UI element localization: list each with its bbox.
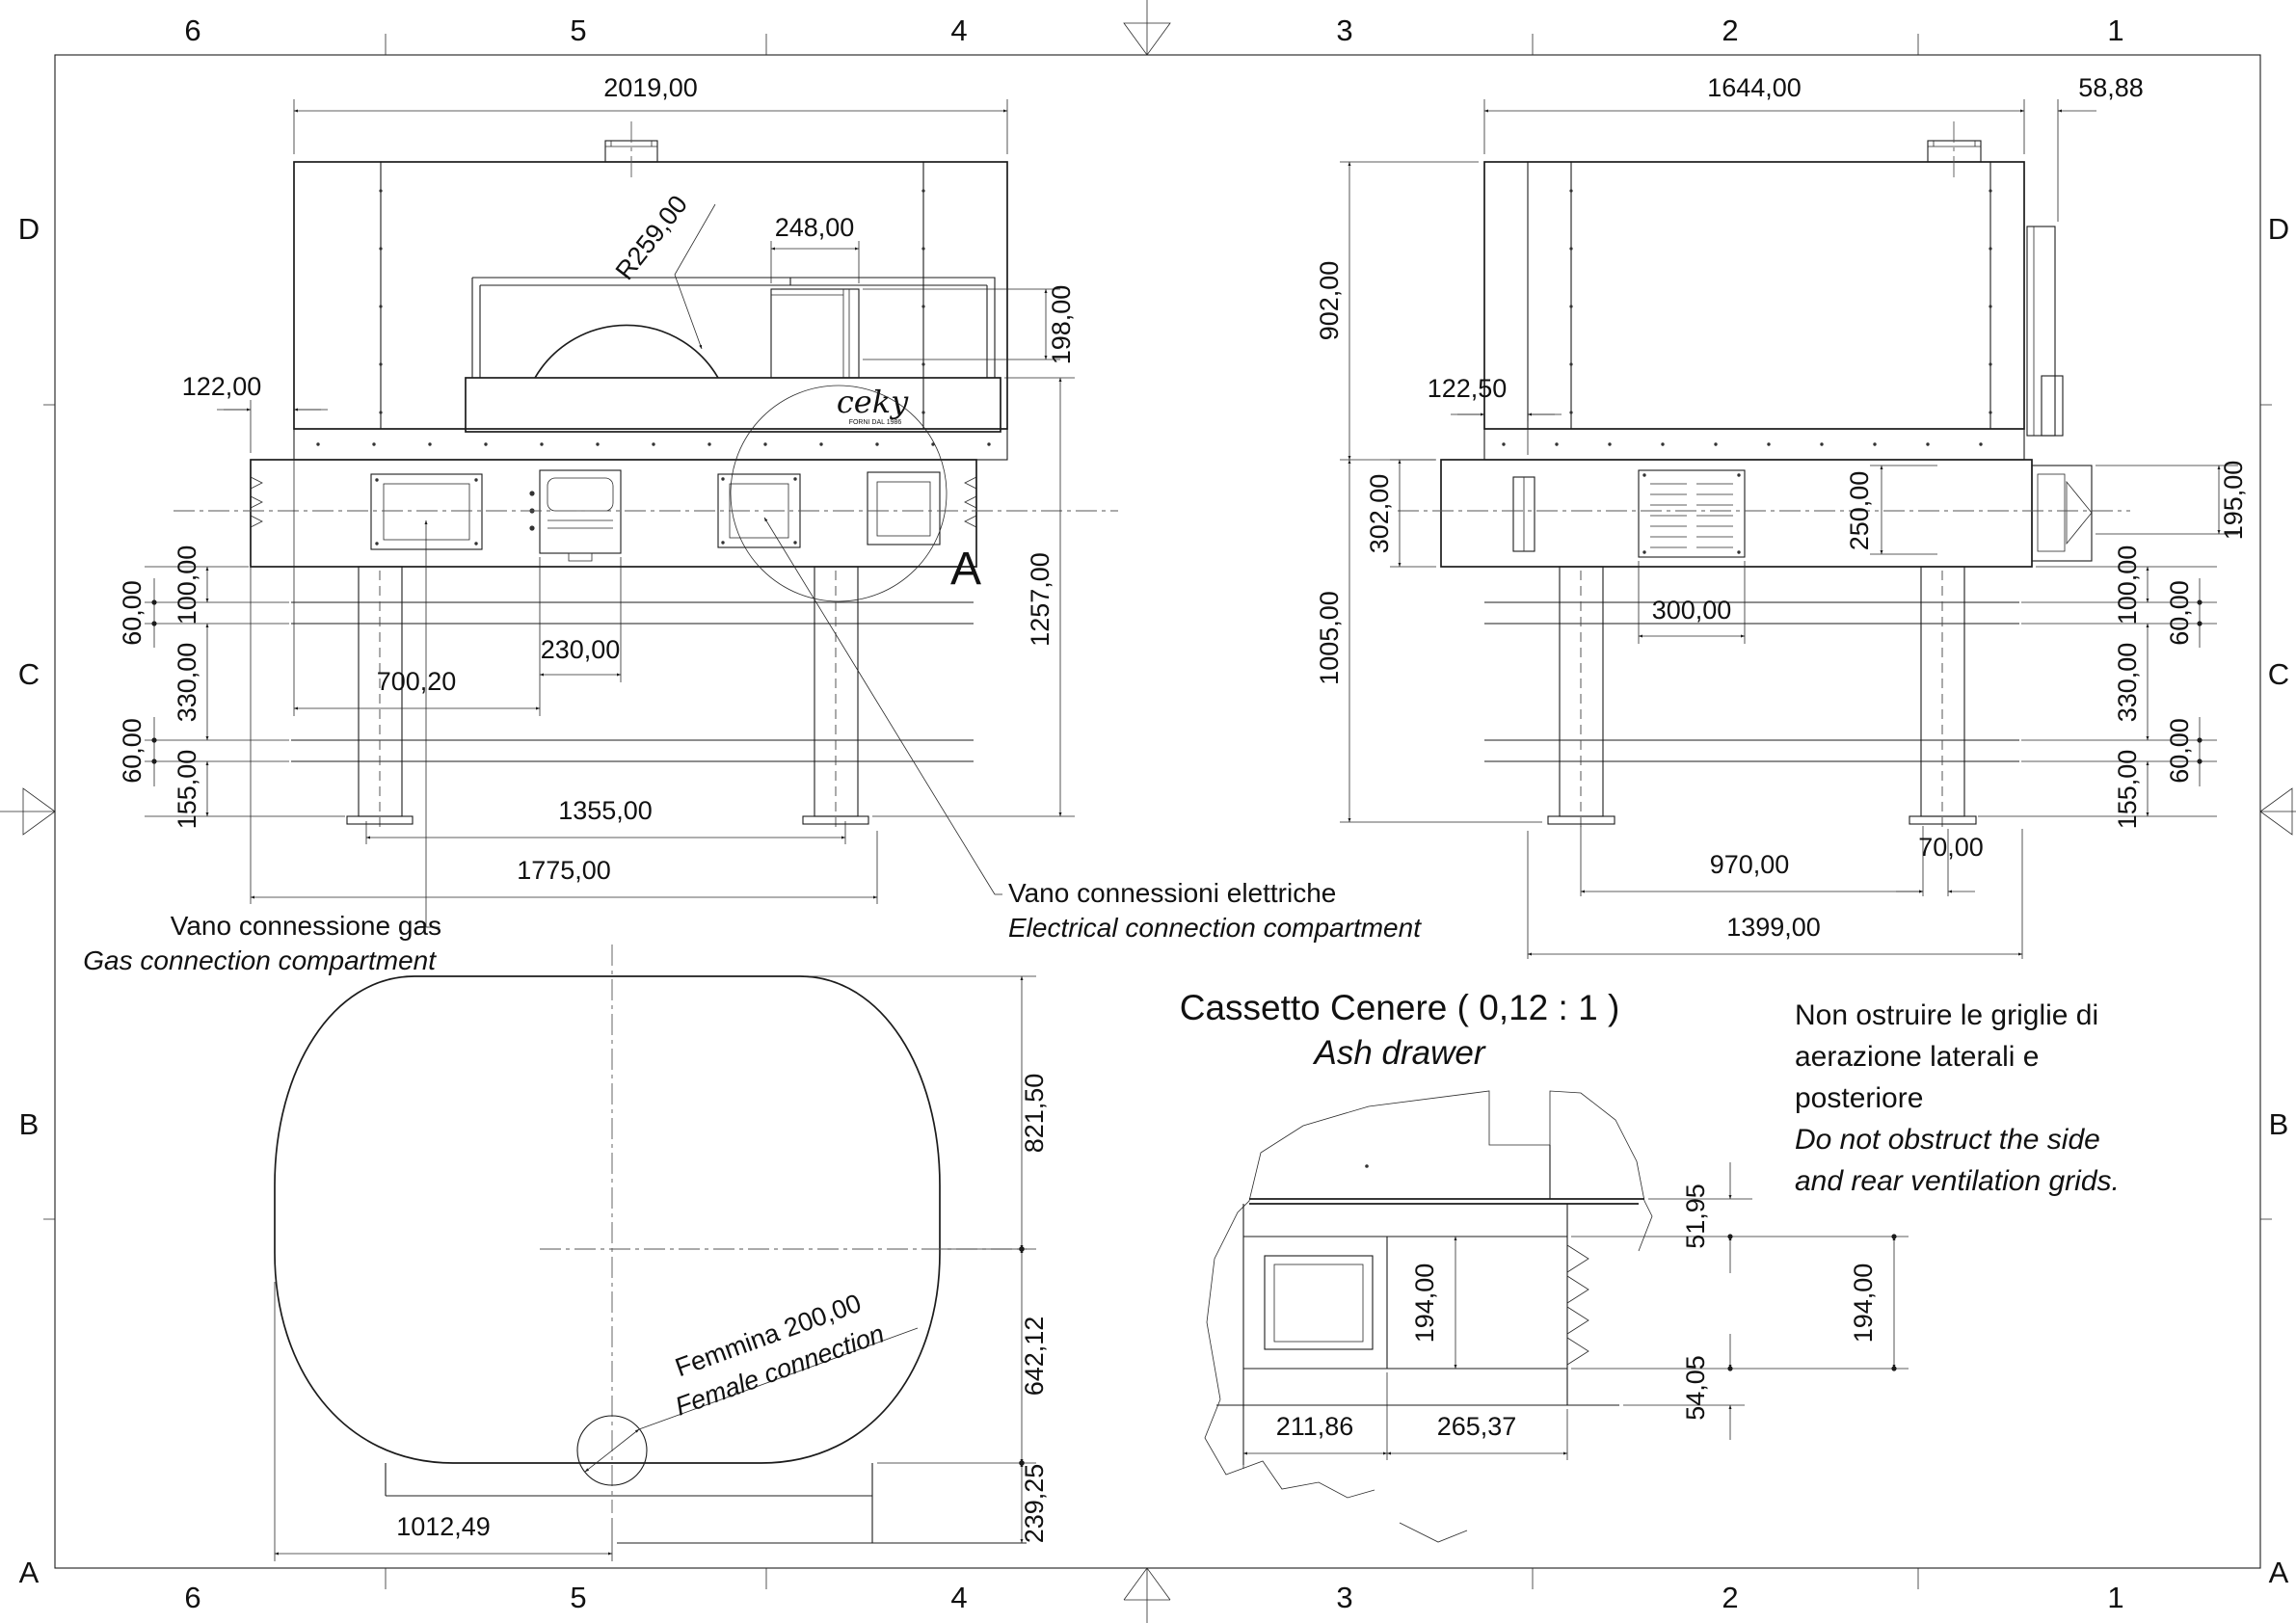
front-dimensions: 2019,00 R259,00 248,00 198,00 1257,00 12… (118, 73, 1076, 904)
dim-stack-330: 330,00 (173, 643, 201, 723)
detail-dimensions: 51,95 194,00 194,00 54,05 211,86 265,37 (1243, 1162, 1909, 1469)
side-legs (1484, 567, 2019, 829)
border-frame: 6 5 4 3 2 1 6 5 4 3 2 1 D C B A D C B A (0, 0, 2296, 1623)
dim-legs-span: 1355,00 (558, 796, 653, 825)
border-row-left: D (18, 212, 40, 246)
border-row-left: C (18, 657, 40, 691)
border-row-right: D (2268, 212, 2289, 246)
chimney-side (1928, 121, 1981, 179)
brand-logo-subtext: FORNI DAL 1986 (849, 419, 902, 426)
note-line-en: and rear ventilation grids. (1795, 1165, 2120, 1197)
side-opening (771, 289, 859, 378)
label-electrical-it: Vano connessioni elettriche (1008, 878, 1336, 908)
dim-plan-front: 821,50 (1020, 1074, 1049, 1154)
brand-logo: ceky (837, 384, 909, 420)
dim-stack-155: 155,00 (2113, 750, 2142, 830)
dim-body-height: 902,00 (1315, 261, 1344, 341)
dim-side-legs-span: 970,00 (1710, 850, 1790, 879)
border-row-right: C (2268, 657, 2289, 691)
dim-stack-330: 330,00 (2113, 643, 2142, 723)
dim-detail-h2: 194,00 (1849, 1264, 1878, 1344)
dim-stack-100: 100,00 (2113, 545, 2142, 625)
dim-detail-w1: 211,86 (1276, 1412, 1354, 1441)
dim-depth: 1644,00 (1707, 73, 1802, 102)
dim-plan-rear: 642,12 (1020, 1317, 1049, 1397)
dim-overhang: 58,88 (2078, 73, 2144, 102)
detail-subtitle: Ash drawer (1312, 1034, 1485, 1072)
side-compartment-band (1441, 460, 2092, 567)
oven-facade: ceky FORNI DAL 1986 (466, 278, 1001, 432)
dim-front-offset: 122,00 (182, 372, 262, 401)
border-col-bottom: 3 (1336, 1581, 1352, 1614)
front-labels: Vano connessione gas Gas connection comp… (83, 518, 1422, 975)
door-edge-overhang (2027, 226, 2063, 436)
dim-arch-radius: R259,00 (610, 190, 693, 285)
ventilation-grille (1639, 470, 1745, 557)
note-line-en: Do not obstruct the side (1795, 1124, 2100, 1156)
note-line-it: Non ostruire le griglie di (1795, 999, 2098, 1031)
dim-opening-width: 248,00 (775, 213, 855, 242)
dim-stack-60b: 60,00 (118, 718, 147, 784)
dome-outline (275, 976, 940, 1463)
border-col-bottom: 5 (570, 1581, 586, 1614)
rivet-dots (316, 442, 990, 445)
dim-stack-155: 155,00 (173, 750, 201, 830)
dim-stack-60b: 60,00 (2165, 718, 2194, 784)
dim-front-width: 2019,00 (603, 73, 698, 102)
ash-drawer-panel (529, 470, 621, 561)
dim-band-height: 302,00 (1365, 474, 1394, 554)
dim-stack-60a: 60,00 (118, 580, 147, 646)
label-gas-it: Vano connessione gas (171, 911, 441, 941)
dim-detail-bottomgap: 54,05 (1681, 1355, 1710, 1421)
side-view: 1644,00 58,88 902,00 1005,00 122,50 302,… (1315, 73, 2248, 959)
dim-stack-100: 100,00 (173, 545, 201, 625)
border-col-top: 3 (1336, 13, 1352, 47)
border-row-left: B (19, 1107, 40, 1141)
dim-front-height: 1257,00 (1026, 552, 1055, 647)
break-outline-squiggle (1400, 1523, 1467, 1542)
dim-foot: 70,00 (1918, 833, 1984, 862)
border-col-bottom: 4 (950, 1581, 967, 1614)
dim-base-width: 1775,00 (517, 856, 611, 885)
border-col-top: 1 (2107, 13, 2123, 47)
dim-detail-topgap: 51,95 (1681, 1184, 1710, 1249)
side-dimensions: 1644,00 58,88 902,00 1005,00 122,50 302,… (1315, 73, 2248, 959)
dim-plan-tail: 239,25 (1020, 1464, 1049, 1544)
border-col-top: 4 (950, 13, 967, 47)
counter-band (466, 378, 1001, 432)
note-line-it: aerazione laterali e (1795, 1041, 2040, 1073)
plan-view: Femmina 200,00 Female connection 821,50 … (275, 945, 1049, 1561)
front-view: ceky FORNI DAL 1986 A (83, 73, 1422, 975)
note-line-it: posteriore (1795, 1082, 1923, 1114)
dim-opening-height: 198,00 (1047, 285, 1076, 365)
gas-compartment-panel (371, 474, 482, 549)
cad-drawing: 6 5 4 3 2 1 6 5 4 3 2 1 D C B A D C B A … (0, 0, 2296, 1623)
border-col-top: 6 (184, 13, 200, 47)
plan-dimensions: 821,50 642,12 239,25 1012,49 (275, 976, 1049, 1561)
dim-gas-position: 700,20 (377, 667, 457, 696)
label-gas-en: Gas connection compartment (83, 945, 437, 975)
note-block: Non ostruire le griglie di aerazione lat… (1795, 999, 2120, 1197)
dim-grille-width: 300,00 (1652, 596, 1732, 625)
drawing-sheet: 6 5 4 3 2 1 6 5 4 3 2 1 D C B A D C B A … (0, 0, 2296, 1623)
label-electrical-en: Electrical connection compartment (1008, 913, 1422, 943)
border-col-bottom: 2 (1722, 1581, 1738, 1614)
compartment-band (251, 460, 976, 567)
female-connection: Femmina 200,00 Female connection (577, 1289, 918, 1485)
border-col-bottom: 1 (2107, 1581, 2123, 1614)
dim-grille-height: 250,00 (1845, 471, 1874, 551)
front-legs (291, 567, 974, 829)
dim-detail-h1: 194,00 (1410, 1264, 1439, 1344)
detail-marker-label: A (950, 544, 981, 595)
dim-base-depth: 1399,00 (1726, 913, 1821, 942)
oven-mouth-arch (535, 325, 718, 378)
chimney-front (605, 121, 657, 179)
dim-detail-w2: 265,37 (1437, 1412, 1517, 1441)
border-col-top: 5 (570, 13, 586, 47)
border-row-right: B (2269, 1107, 2289, 1141)
dim-ash-width: 230,00 (541, 635, 621, 664)
side-drawer-box (2032, 466, 2092, 561)
dim-plan-cx: 1012,49 (396, 1512, 491, 1541)
dim-handle-height: 195,00 (2219, 461, 2248, 541)
border-row-right: A (2269, 1556, 2289, 1589)
border-row-left: A (19, 1556, 40, 1589)
ash-drawer-door (1265, 1256, 1373, 1349)
service-panel (868, 472, 940, 545)
grille-serration (1567, 1245, 1589, 1365)
dim-stack-60a: 60,00 (2165, 580, 2194, 646)
border-col-top: 2 (1722, 13, 1738, 47)
border-col-bottom: 6 (184, 1581, 200, 1614)
dim-side-offset: 122,50 (1428, 374, 1508, 403)
detail-title: Cassetto Cenere ( 0,12 : 1 ) (1180, 988, 1620, 1027)
dim-under-height: 1005,00 (1315, 591, 1344, 685)
